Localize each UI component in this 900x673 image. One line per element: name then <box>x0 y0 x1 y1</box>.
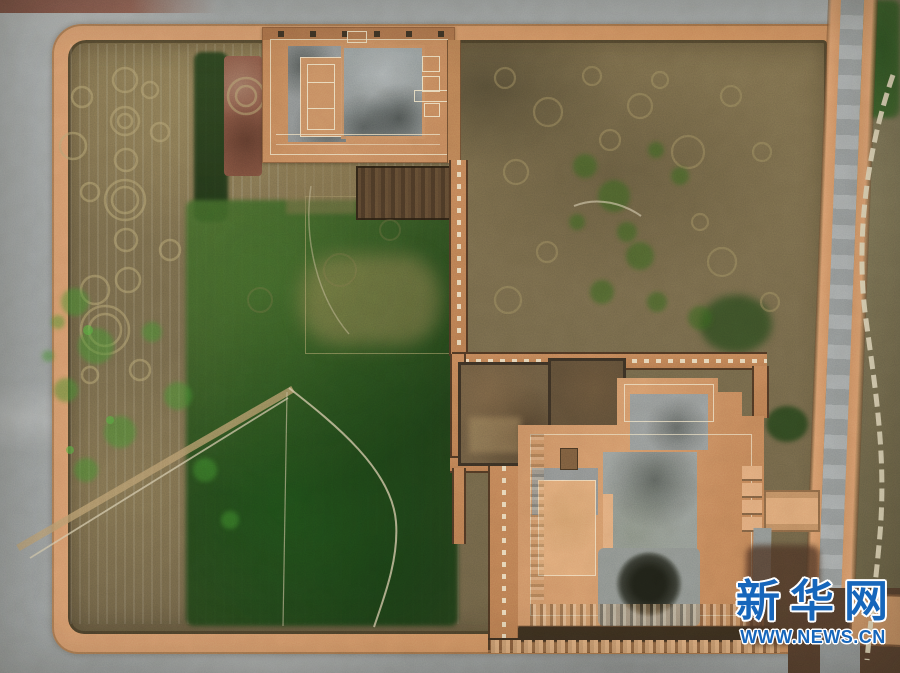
east-wing-wall <box>447 40 461 163</box>
protective-plank-cover <box>356 166 452 220</box>
top-left-soil-strip <box>0 0 218 13</box>
east-step <box>742 466 762 481</box>
east-pier-outline <box>424 103 440 117</box>
central-axis-wall <box>449 160 468 356</box>
wall-brick-dashes <box>502 466 506 650</box>
north-gate-outline <box>347 31 367 43</box>
east-step <box>742 483 762 498</box>
east-walkway-bridge <box>764 490 820 532</box>
stair-notch <box>560 448 578 470</box>
green-patch-near-east-wall <box>766 406 808 442</box>
east-pier-outline <box>422 56 440 72</box>
east-step <box>742 500 762 515</box>
post-hole <box>278 31 284 37</box>
post-hole <box>406 31 412 37</box>
east-field-green-patch <box>700 295 772 353</box>
post-hole <box>438 31 444 37</box>
west-wall-stub <box>452 468 466 544</box>
east-compound-wall <box>752 366 769 418</box>
north-hall-outline <box>624 384 714 422</box>
aerial-photo-archaeological-site: 新华网 WWW.NEWS.CN <box>0 0 900 673</box>
xinhua-logo-text: 新华网 <box>736 580 898 624</box>
central-stone-court <box>344 48 422 136</box>
post-hole <box>310 31 316 37</box>
post-hole <box>374 31 380 37</box>
wall-brick-dashes <box>457 160 461 356</box>
vegetation-strip <box>194 52 228 222</box>
west-brick-ticks <box>530 434 544 604</box>
foundation-divider <box>307 108 334 109</box>
excavation-apron <box>286 162 356 214</box>
north-room <box>548 358 626 432</box>
west-corridor-wall <box>488 466 520 650</box>
south-edge-line <box>276 144 440 145</box>
brick-debris-area <box>224 56 262 176</box>
foundation-divider <box>307 82 334 83</box>
south-edge-line <box>276 134 440 135</box>
room-floor-wash <box>469 417 521 453</box>
north-excavation-platform <box>262 27 455 163</box>
xinhua-watermark: 新华网 WWW.NEWS.CN <box>728 580 898 660</box>
xinhua-url-text: WWW.NEWS.CN <box>728 627 898 648</box>
foundation-outline <box>307 64 335 130</box>
west-foundation-block <box>538 480 596 576</box>
west-inner-foundation <box>300 57 342 137</box>
